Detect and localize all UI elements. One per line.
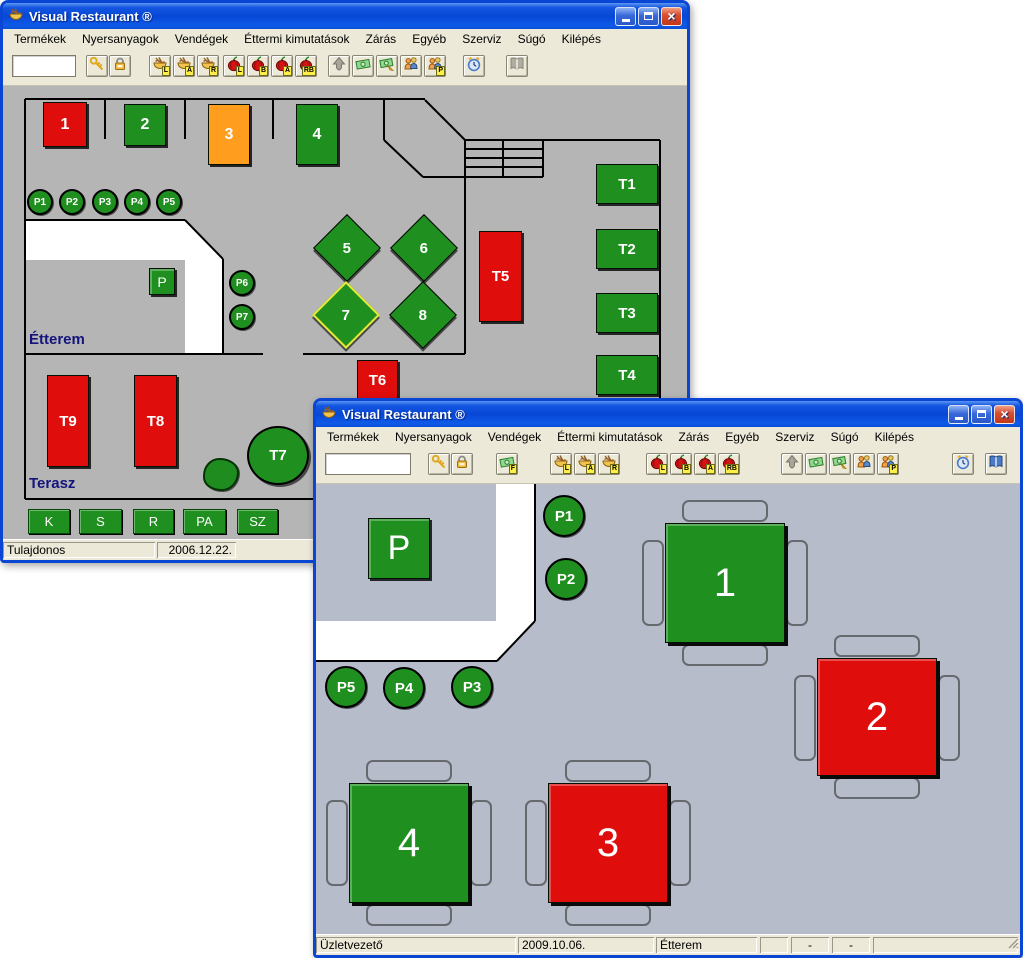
- table-label: T8: [147, 413, 165, 430]
- seat-P4[interactable]: P4: [383, 667, 425, 709]
- counter-P[interactable]: P: [368, 518, 430, 579]
- maximize-icon: [644, 12, 653, 20]
- menu-item-1[interactable]: Nyersanyagok: [387, 427, 480, 447]
- chair-bottom: [682, 644, 768, 666]
- status-panel-1: 2006.12.22.: [157, 542, 236, 558]
- maximize-button[interactable]: [638, 7, 659, 26]
- chair-left: [794, 675, 816, 761]
- badge: R: [610, 464, 619, 474]
- spade-icon: [331, 56, 347, 77]
- seat-label: P6: [236, 278, 248, 289]
- chair-bottom: [834, 777, 920, 799]
- menu-item-7[interactable]: Súgó: [823, 427, 867, 447]
- app-bowl-icon: [8, 7, 24, 26]
- chair-top: [366, 760, 452, 782]
- table-T5[interactable]: T5: [479, 231, 522, 322]
- room-label: Terasz: [29, 475, 75, 492]
- clock-icon: [466, 56, 482, 77]
- book-icon: [509, 56, 525, 77]
- maximize-icon: [977, 410, 986, 418]
- chair-left: [326, 800, 348, 886]
- bowl-button[interactable]: R: [197, 55, 219, 77]
- room-button-R[interactable]: R: [133, 509, 174, 534]
- seat-label: P5: [163, 197, 175, 208]
- status-panel-5: -: [832, 937, 870, 953]
- menu-item-5[interactable]: Egyéb: [404, 29, 454, 49]
- badge: RB: [302, 66, 316, 76]
- spade-button[interactable]: [328, 55, 350, 77]
- key-button[interactable]: [428, 453, 450, 475]
- spade-button[interactable]: [781, 453, 803, 475]
- bowl-button[interactable]: A: [574, 453, 596, 475]
- seat-P1[interactable]: P1: [27, 189, 53, 215]
- table-label: T1: [618, 176, 636, 193]
- chair-right: [669, 800, 691, 886]
- room-button-label: PA: [196, 514, 212, 529]
- badge: A: [185, 66, 194, 76]
- onion-button[interactable]: B: [247, 55, 269, 77]
- chair-bottom: [565, 904, 651, 926]
- bowl-button[interactable]: L: [550, 453, 572, 475]
- titlebar[interactable]: Visual Restaurant ®×: [316, 401, 1020, 427]
- table-label: T4: [618, 367, 636, 384]
- clock-icon: [955, 454, 971, 475]
- bowl-button[interactable]: R: [598, 453, 620, 475]
- seat-label: P5: [337, 679, 355, 696]
- room-button-SZ[interactable]: SZ: [237, 509, 278, 534]
- table-T6[interactable]: T6: [357, 360, 398, 400]
- seat-P5[interactable]: P5: [325, 666, 367, 708]
- menu-item-2[interactable]: Vendégek: [480, 427, 549, 447]
- table-label: 2: [866, 695, 888, 740]
- seat-label: P4: [395, 680, 413, 697]
- seat-P3[interactable]: P3: [451, 666, 493, 708]
- people-button[interactable]: P: [424, 55, 446, 77]
- table-label: 3: [597, 821, 619, 866]
- money-pencil-button[interactable]: [829, 453, 851, 475]
- table-T7[interactable]: T7: [247, 426, 309, 485]
- badge: B: [259, 66, 268, 76]
- menu-item-8[interactable]: Kilépés: [867, 427, 922, 447]
- chair-left: [642, 540, 664, 626]
- statusbar: Üzletvezető2009.10.06.Étterem--: [316, 934, 1020, 955]
- money-icon: [808, 454, 824, 475]
- chair-right: [786, 540, 808, 626]
- menubar: TermékekNyersanyagokVendégekÉttermi kimu…: [316, 427, 1020, 447]
- table-1[interactable]: 1: [665, 523, 785, 643]
- counter-P[interactable]: P: [149, 268, 175, 295]
- menu-item-8[interactable]: Kilépés: [554, 29, 609, 49]
- key-button[interactable]: [86, 55, 108, 77]
- table-label: T9: [59, 413, 77, 430]
- menu-item-0[interactable]: Termékek: [319, 427, 387, 447]
- toolbar-search-input[interactable]: [325, 453, 411, 475]
- table-label: 3: [225, 126, 234, 144]
- menu-item-4[interactable]: Zárás: [358, 29, 405, 49]
- table-4[interactable]: 4: [349, 783, 469, 903]
- money-button[interactable]: [805, 453, 827, 475]
- table-label: 6: [420, 240, 428, 257]
- lock-icon: [112, 56, 128, 77]
- table-2[interactable]: 2: [124, 104, 166, 146]
- badge: A: [586, 464, 595, 474]
- money-pencil-icon: [379, 56, 395, 77]
- onion-button[interactable]: B: [670, 453, 692, 475]
- onion-button[interactable]: A: [694, 453, 716, 475]
- close-button[interactable]: ×: [661, 7, 682, 26]
- menu-item-1[interactable]: Nyersanyagok: [74, 29, 167, 49]
- lock-button[interactable]: [451, 453, 473, 475]
- status-panel-1: 2009.10.06.: [518, 937, 654, 953]
- money-pencil-icon: [832, 454, 848, 475]
- table-T4[interactable]: T4: [596, 355, 658, 395]
- room-button-S[interactable]: S: [79, 509, 122, 534]
- menu-item-5[interactable]: Egyéb: [717, 427, 767, 447]
- table-T2[interactable]: T2: [596, 229, 658, 269]
- menubar: TermékekNyersanyagokVendégekÉttermi kimu…: [3, 29, 687, 49]
- people-icon: [403, 56, 419, 77]
- desktop: Visual Restaurant ®×TermékekNyersanyagok…: [0, 0, 1023, 958]
- table-3[interactable]: 3: [548, 783, 668, 903]
- seat-label: P3: [99, 197, 111, 208]
- table-label: 1: [61, 116, 70, 134]
- book-button[interactable]: [985, 453, 1007, 475]
- onion-button[interactable]: L: [223, 55, 245, 77]
- table-4[interactable]: 4: [296, 104, 338, 165]
- menu-item-2[interactable]: Vendégek: [167, 29, 236, 49]
- menu-item-6[interactable]: Szerviz: [454, 29, 509, 49]
- badge: L: [659, 464, 667, 474]
- minimize-button[interactable]: [615, 7, 636, 26]
- status-panel-4: -: [791, 937, 829, 953]
- table-1[interactable]: 1: [43, 102, 87, 147]
- counter-label: P: [157, 274, 166, 290]
- clock-button[interactable]: [952, 453, 974, 475]
- money-button[interactable]: [352, 55, 374, 77]
- status-panel-0: Tulajdonos: [3, 542, 155, 558]
- maximize-button[interactable]: [971, 405, 992, 424]
- table-label: T5: [492, 268, 510, 285]
- menu-item-6[interactable]: Szerviz: [767, 427, 822, 447]
- table-label: T6: [369, 372, 387, 389]
- plant-icon: [203, 458, 239, 491]
- badge: P: [889, 464, 898, 474]
- close-icon: ×: [1000, 407, 1008, 421]
- menu-item-7[interactable]: Súgó: [510, 29, 554, 49]
- key-icon: [89, 56, 105, 77]
- toolbar-search-input[interactable]: [12, 55, 76, 77]
- onion-button[interactable]: RB: [295, 55, 317, 77]
- room-button-label: SZ: [249, 514, 266, 529]
- table-T8[interactable]: T8: [134, 375, 177, 467]
- room-button-label: K: [45, 514, 54, 529]
- table-label: 2: [141, 116, 150, 134]
- table-label: T2: [618, 241, 636, 258]
- badge: RB: [725, 464, 739, 474]
- room-button-label: R: [149, 514, 158, 529]
- status-panel-6: [873, 937, 1018, 953]
- titlebar[interactable]: Visual Restaurant ®×: [3, 3, 687, 29]
- people-button[interactable]: [400, 55, 422, 77]
- menu-item-3[interactable]: Éttermi kimutatások: [236, 29, 357, 49]
- chair-left: [525, 800, 547, 886]
- table-label: 7: [342, 307, 350, 324]
- badge: L: [236, 66, 244, 76]
- toolbar: L A R L B A RB P: [3, 49, 687, 86]
- counter-label: P: [388, 529, 411, 568]
- room-button-label: S: [96, 514, 105, 529]
- window-title: Visual Restaurant ®: [29, 9, 152, 24]
- seat-P4[interactable]: P4: [124, 189, 150, 215]
- badge: B: [682, 464, 691, 474]
- seat-P2[interactable]: P2: [59, 189, 85, 215]
- seat-label: P1: [34, 197, 46, 208]
- window-controls: ×: [615, 7, 682, 26]
- key-icon: [431, 454, 447, 475]
- lock-icon: [454, 454, 470, 475]
- people-button[interactable]: P: [877, 453, 899, 475]
- menu-item-3[interactable]: Éttermi kimutatások: [549, 427, 670, 447]
- seat-P2[interactable]: P2: [545, 558, 587, 600]
- app-bowl-icon: [321, 405, 337, 424]
- seat-P6[interactable]: P6: [229, 270, 255, 296]
- badge: L: [162, 66, 170, 76]
- table-label: 8: [419, 307, 427, 324]
- menu-item-4[interactable]: Zárás: [671, 427, 718, 447]
- chair-top: [834, 635, 920, 657]
- table-label: 1: [714, 561, 736, 606]
- table-2[interactable]: 2: [817, 658, 937, 776]
- close-icon: ×: [667, 9, 675, 23]
- badge: P: [436, 66, 445, 76]
- seat-P7[interactable]: P7: [229, 304, 255, 330]
- menu-item-0[interactable]: Termékek: [6, 29, 74, 49]
- people-icon: [856, 454, 872, 475]
- toolbar: F L A R L B A RB: [316, 447, 1020, 484]
- window-title: Visual Restaurant ®: [342, 407, 465, 422]
- status-panel-3: [760, 937, 788, 953]
- room-label: Étterem: [29, 331, 85, 348]
- seat-label: P4: [131, 197, 143, 208]
- badge: F: [509, 464, 517, 474]
- table-3[interactable]: 3: [208, 104, 250, 165]
- bowl-button[interactable]: L: [149, 55, 171, 77]
- money-icon: [355, 56, 371, 77]
- clock-button[interactable]: [463, 55, 485, 77]
- table-label: 5: [343, 240, 351, 257]
- seat-label: P2: [66, 197, 78, 208]
- window-controls: ×: [948, 405, 1015, 424]
- chair-top: [682, 500, 768, 522]
- badge: A: [283, 66, 292, 76]
- badge: L: [563, 464, 571, 474]
- seat-label: P2: [557, 571, 575, 588]
- table-T9[interactable]: T9: [47, 375, 89, 467]
- lock-button[interactable]: [109, 55, 131, 77]
- chair-right: [938, 675, 960, 761]
- status-panel-0: Üzletvezető: [316, 937, 516, 953]
- seat-label: P1: [555, 508, 573, 525]
- onion-button[interactable]: L: [646, 453, 668, 475]
- book-button[interactable]: [506, 55, 528, 77]
- minimize-icon: [955, 417, 963, 420]
- money-pencil-button[interactable]: [376, 55, 398, 77]
- book-icon: [988, 454, 1004, 475]
- seat-P1[interactable]: P1: [543, 495, 585, 537]
- badge: R: [209, 66, 218, 76]
- front-window: Visual Restaurant ®×TermékekNyersanyagok…: [313, 398, 1023, 958]
- table-label: T3: [618, 305, 636, 322]
- onion-button[interactable]: A: [271, 55, 293, 77]
- onion-button[interactable]: RB: [718, 453, 740, 475]
- resize-grip[interactable]: [1007, 936, 1019, 954]
- seat-label: P3: [463, 679, 481, 696]
- bowl-button[interactable]: A: [173, 55, 195, 77]
- seat-P5[interactable]: P5: [156, 189, 182, 215]
- minimize-icon: [622, 19, 630, 22]
- room-button-K[interactable]: K: [28, 509, 70, 534]
- chair-right: [470, 800, 492, 886]
- badge: A: [706, 464, 715, 474]
- floor-plan: PP1P2P3P4P51234: [316, 484, 1020, 934]
- chair-bottom: [366, 904, 452, 926]
- spade-icon: [784, 454, 800, 475]
- close-button[interactable]: ×: [994, 405, 1015, 424]
- table-label: 4: [313, 126, 322, 144]
- status-panel-2: Étterem: [656, 937, 757, 953]
- table-label: 4: [398, 821, 420, 866]
- minimize-button[interactable]: [948, 405, 969, 424]
- table-T3[interactable]: T3: [596, 293, 658, 333]
- room-button-PA[interactable]: PA: [183, 509, 226, 534]
- seat-P3[interactable]: P3: [92, 189, 118, 215]
- seat-label: P7: [236, 312, 248, 323]
- money-button[interactable]: F: [496, 453, 518, 475]
- people-button[interactable]: [853, 453, 875, 475]
- table-label: T7: [269, 447, 287, 464]
- chair-top: [565, 760, 651, 782]
- table-T1[interactable]: T1: [596, 164, 658, 204]
